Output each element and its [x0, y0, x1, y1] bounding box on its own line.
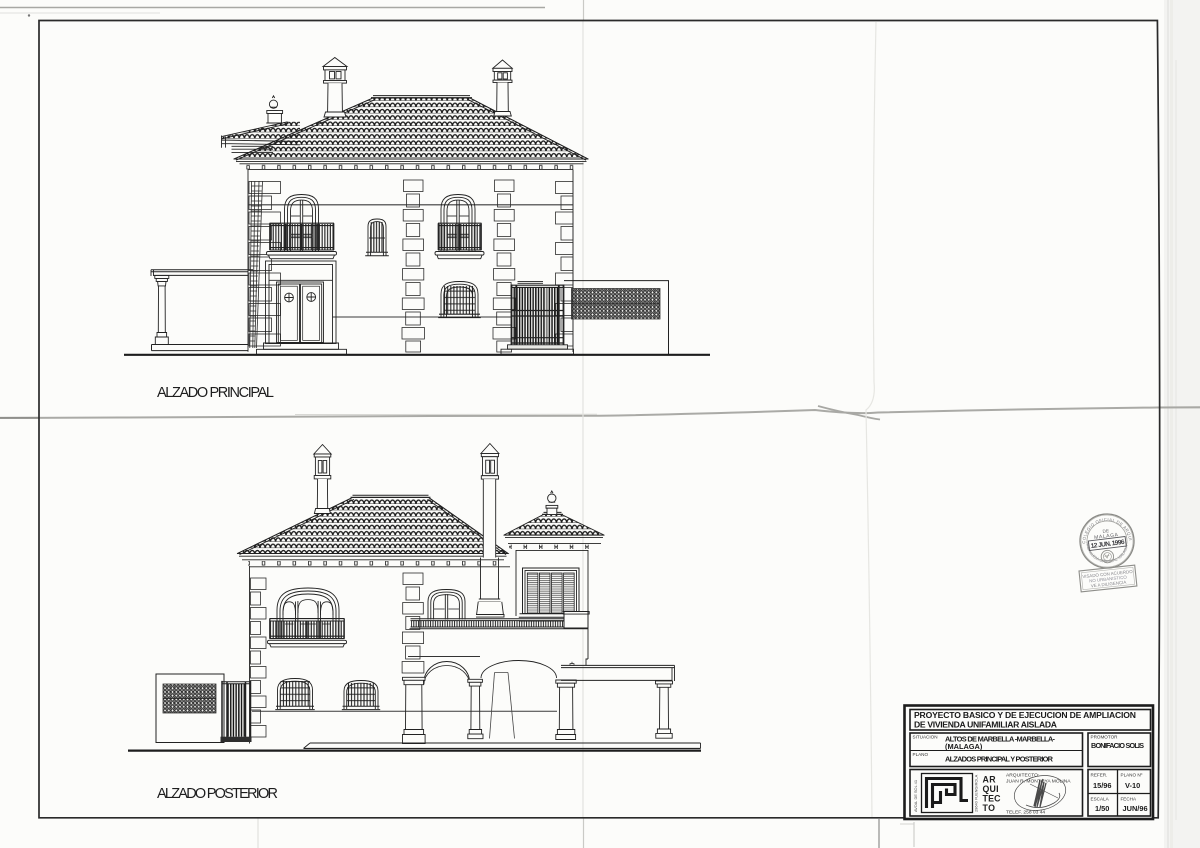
- svg-text:1/50: 1/50: [1095, 804, 1109, 813]
- svg-text:29640 FUENGIROLA: 29640 FUENGIROLA: [974, 774, 979, 812]
- svg-text:AVDA. DE SOL 41: AVDA. DE SOL 41: [913, 780, 918, 812]
- svg-text:REFER.: REFER.: [1091, 773, 1108, 778]
- svg-text:ALZADO PRINCIPAL: ALZADO PRINCIPAL: [157, 385, 274, 401]
- svg-text:15/96: 15/96: [1093, 781, 1112, 790]
- svg-text:PROYECTO BASICO Y DE EJECUCION: PROYECTO BASICO Y DE EJECUCION DE AMPLIA…: [914, 710, 1136, 720]
- svg-text:(MALAGA): (MALAGA): [945, 742, 983, 751]
- svg-text:JUN/96: JUN/96: [1123, 804, 1148, 813]
- svg-text:QUI: QUI: [983, 784, 999, 794]
- svg-text:ARQUITECTO:: ARQUITECTO:: [1006, 773, 1039, 779]
- svg-text:AR: AR: [983, 775, 997, 785]
- svg-text:TO: TO: [983, 803, 996, 813]
- svg-text:SITUACION: SITUACION: [913, 735, 938, 740]
- svg-text:TEC: TEC: [983, 794, 1002, 804]
- svg-text:PLANO Nº: PLANO Nº: [1121, 773, 1143, 778]
- svg-text:ESCALA: ESCALA: [1091, 797, 1110, 802]
- svg-text:ALZADO POSTERIOR: ALZADO POSTERIOR: [157, 786, 278, 802]
- svg-text:V-10: V-10: [1125, 781, 1140, 790]
- svg-text:FECHA: FECHA: [1121, 797, 1138, 802]
- svg-text:ALZADOS PRINCIPAL Y POSTERIOR: ALZADOS PRINCIPAL Y POSTERIOR: [945, 755, 1054, 764]
- svg-text:DE VIVIENDA UNIFAMILIAR AISLAD: DE VIVIENDA UNIFAMILIAR AISLADA: [914, 720, 1057, 730]
- svg-text:PROMOTOR: PROMOTOR: [1091, 735, 1119, 740]
- svg-text:BONIFACIO SOLIS: BONIFACIO SOLIS: [1091, 741, 1144, 750]
- svg-text:PLANO: PLANO: [913, 752, 929, 757]
